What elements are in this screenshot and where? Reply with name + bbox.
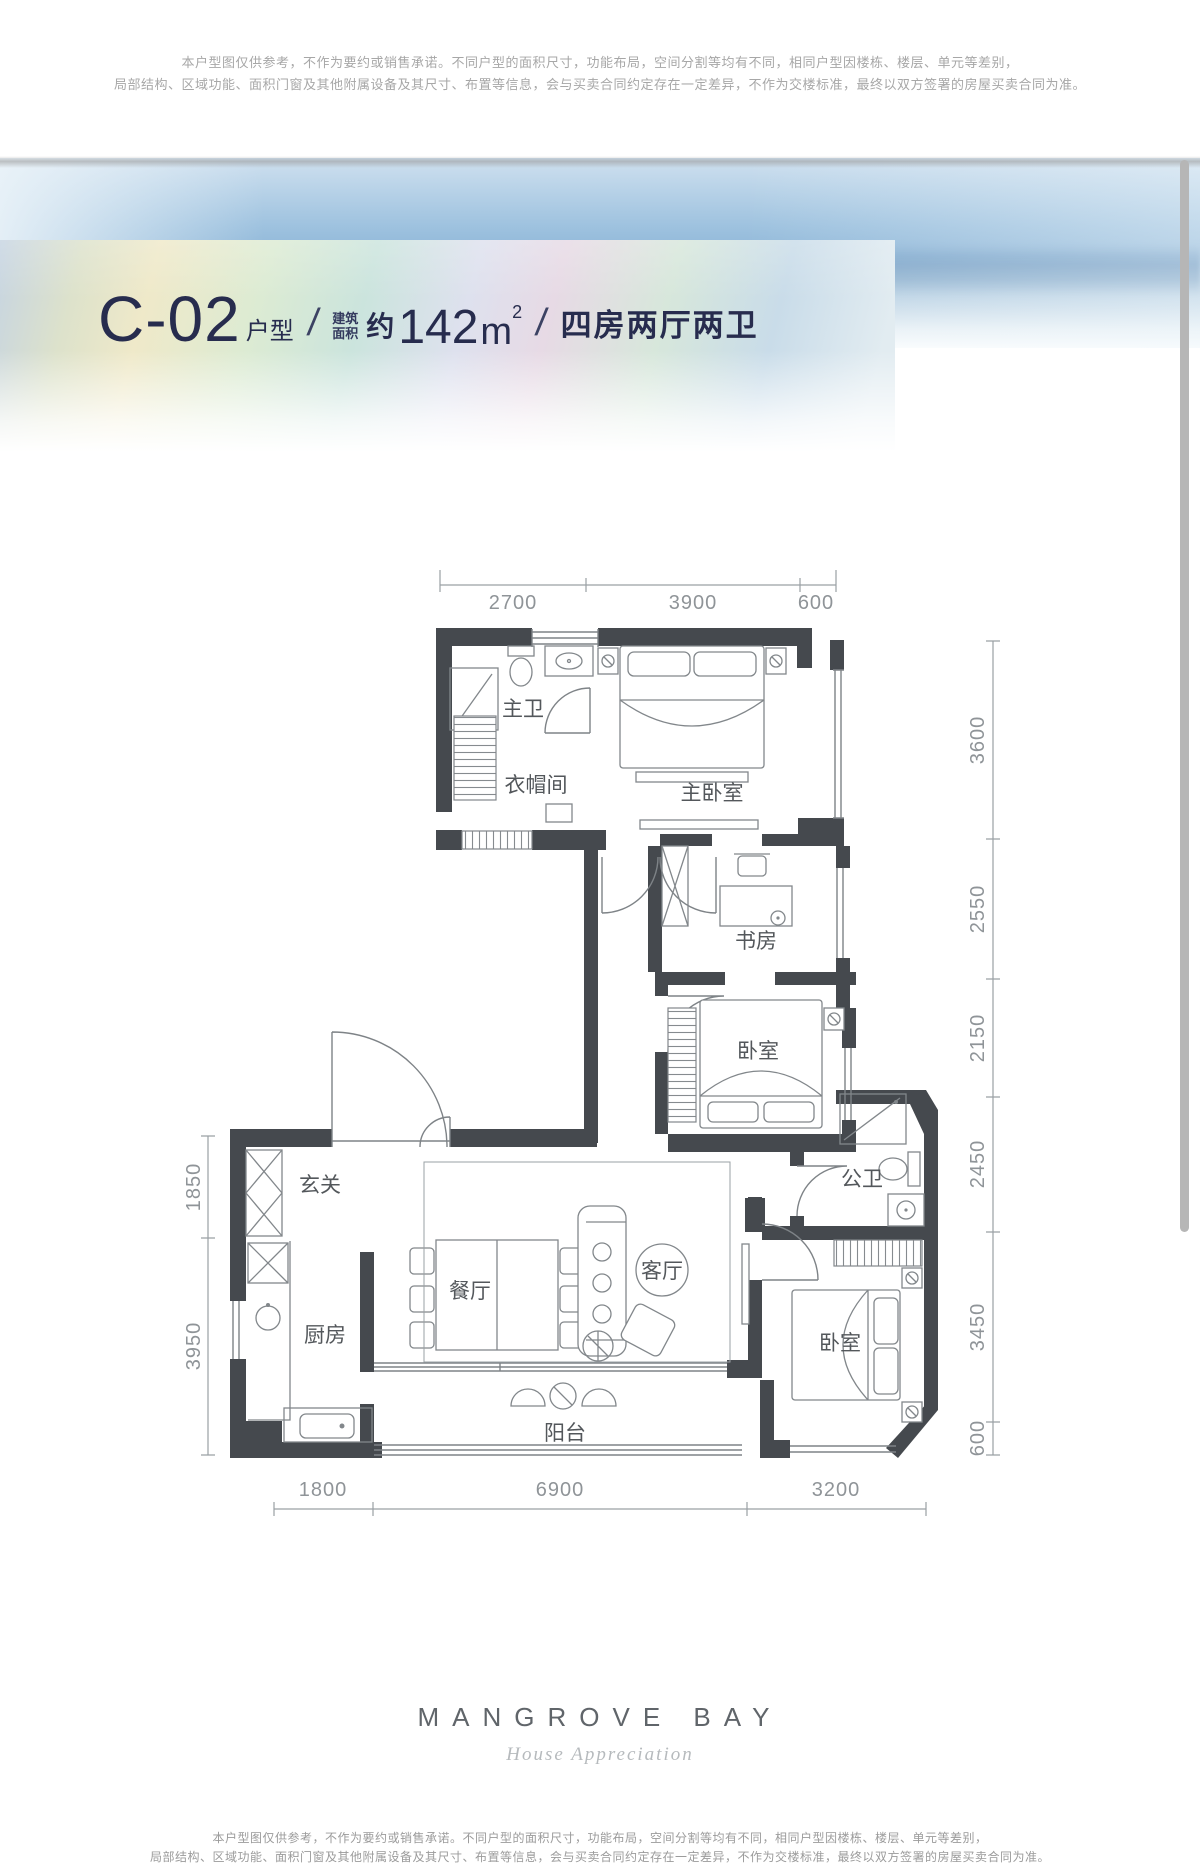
dim-bottom-1800: 1800 (299, 1479, 348, 1501)
dim-top-2700: 2700 (489, 592, 538, 614)
area-caption-line2: 面积 (332, 326, 358, 341)
dim-bottom-3200: 3200 (812, 1479, 861, 1501)
dim-right-3600: 3600 (967, 716, 989, 765)
area-value: 142 (398, 308, 478, 349)
dim-bottom-6900: 6900 (536, 1479, 585, 1501)
room-label-guest-bath: 公卫 (841, 1168, 883, 1191)
dim-right-2150: 2150 (967, 1014, 989, 1063)
room-label-living: 客厅 (641, 1260, 683, 1283)
room-label-master-bedroom: 主卧室 (681, 782, 744, 805)
layout-description: 四房两厅两卫 (561, 300, 759, 345)
title-separator-2: / (533, 302, 550, 345)
bottom-disclaimer-line1: 本户型图仅供参考，不作为要约或销售承诺。不同户型的面积尺寸，功能布局，空间分割等… (60, 1829, 1140, 1848)
dim-top-600: 600 (798, 592, 834, 614)
room-label-cloakroom: 衣帽间 (505, 774, 568, 797)
scrollbar-thumb[interactable] (1180, 160, 1189, 1232)
floorplan-poster-page: { "top_disclaimer": { "line1": "本户型图仅供参考… (0, 0, 1200, 1867)
dim-right-600: 600 (967, 1420, 989, 1456)
bottom-disclaimer: 本户型图仅供参考，不作为要约或销售承诺。不同户型的面积尺寸，功能布局，空间分割等… (60, 1829, 1140, 1867)
area-caption: 建筑 面积 (332, 311, 358, 341)
room-label-study: 书房 (735, 930, 777, 953)
bottom-disclaimer-line2: 局部结构、区域功能、面积门窗及其他附属设备及其尺寸、布置等信息，会与买卖合同约定… (60, 1848, 1140, 1867)
room-label-bedroom-corner: 卧室 (819, 1332, 861, 1355)
title-separator-1: / (305, 302, 322, 345)
floorplan-drawing: 2700 3900 600 3600 2550 2150 2450 3450 6… (0, 0, 1200, 1867)
unit-title-row: C-02 户型 / 建筑 面积 约 142 m 2 / 四房两厅两卫 (98, 290, 759, 349)
room-label-balcony: 阳台 (544, 1422, 586, 1445)
room-label-bedroom-middle: 卧室 (737, 1040, 779, 1063)
dim-right-2450: 2450 (967, 1140, 989, 1189)
dim-left-3950: 3950 (183, 1322, 205, 1371)
area-superscript: 2 (512, 302, 522, 323)
room-label-dining: 餐厅 (449, 1280, 491, 1303)
area-unit: m (480, 315, 512, 349)
brand-logo: MANGROVE BAY (0, 1702, 1200, 1733)
unit-code: C-02 (98, 290, 241, 349)
dim-right-2550: 2550 (967, 885, 989, 934)
unit-type-label: 户型 (246, 311, 294, 346)
dim-left-1850: 1850 (183, 1163, 205, 1212)
brand-tagline: House Appreciation (0, 1744, 1200, 1766)
area-approx: 约 (366, 305, 394, 345)
dim-right-3450: 3450 (967, 1303, 989, 1352)
room-label-master-bath: 主卫 (502, 698, 544, 721)
room-label-foyer: 玄关 (299, 1174, 341, 1197)
dim-top-3900: 3900 (669, 592, 718, 614)
room-label-kitchen: 厨房 (304, 1324, 346, 1347)
area-caption-line1: 建筑 (332, 311, 358, 326)
